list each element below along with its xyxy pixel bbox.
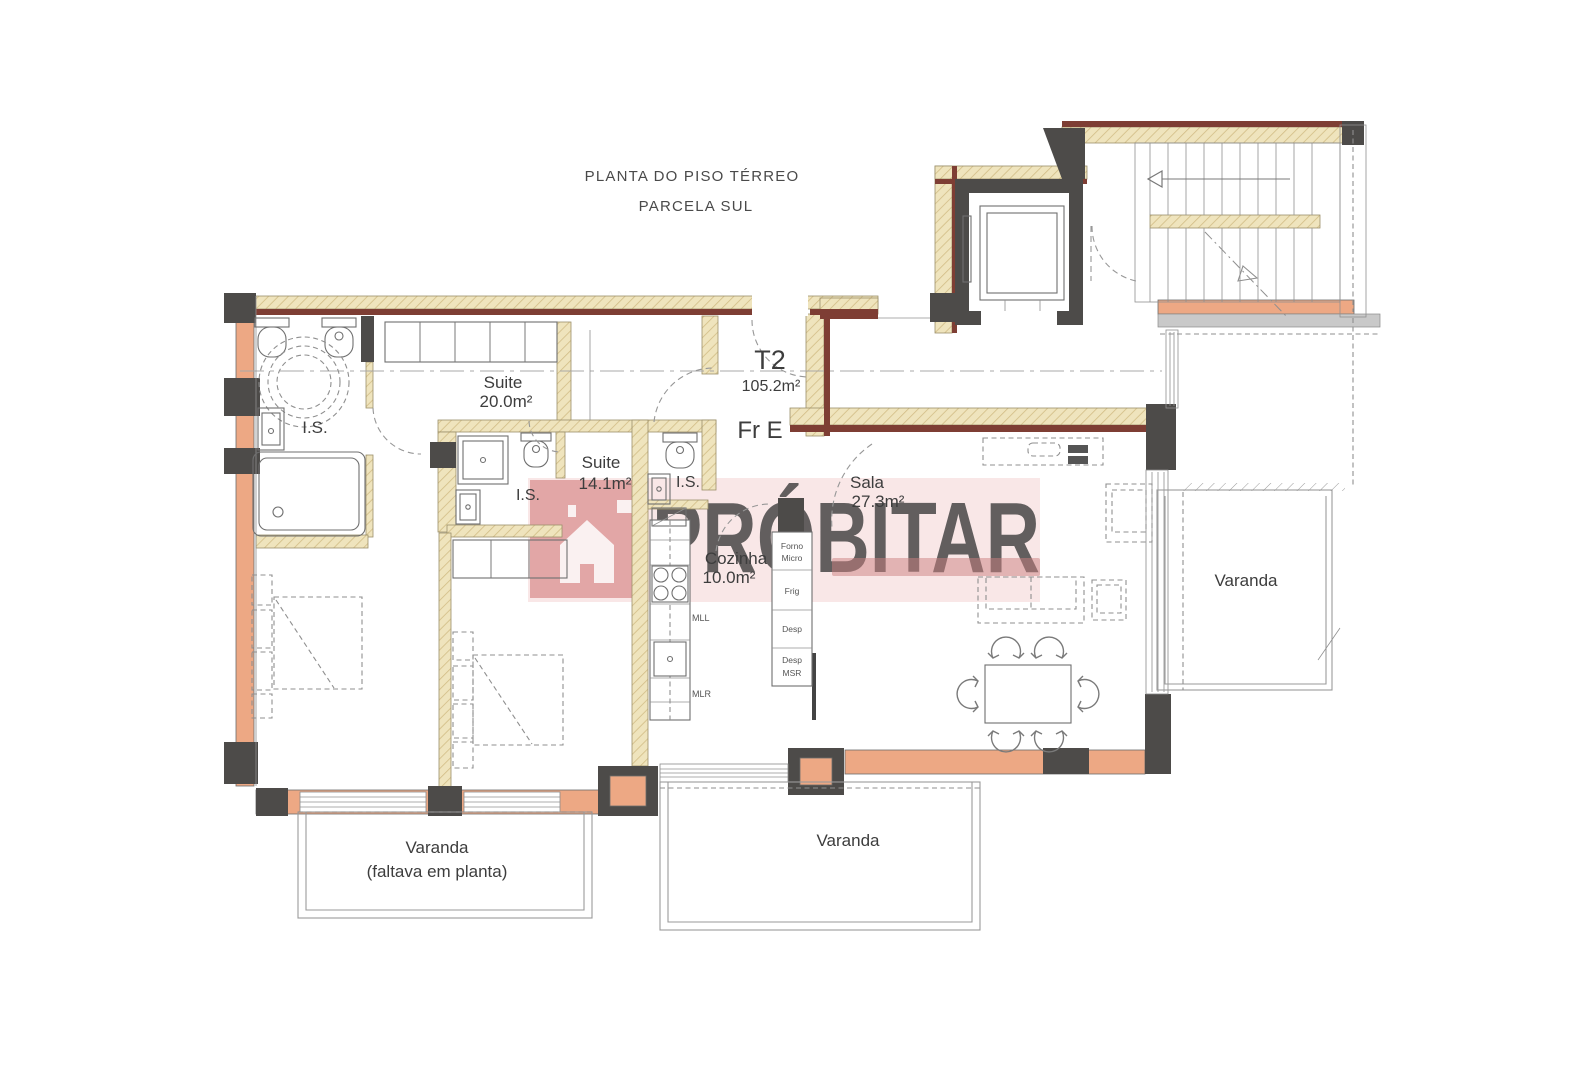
- chair-icon: [1078, 676, 1099, 712]
- bathroom3-label: I.S.: [676, 474, 700, 491]
- balcony-left-label: Varanda: [405, 838, 469, 857]
- bidet-icon: [322, 318, 356, 357]
- unit-area-label: 105.2m²: [742, 378, 801, 395]
- suite1-area: 20.0m²: [480, 392, 533, 411]
- balcony-right: [1157, 490, 1340, 690]
- living-area: 27.3m²: [852, 492, 905, 511]
- plan-subtitle: PARCELA SUL: [639, 198, 754, 215]
- washbasin-icon: [456, 490, 480, 524]
- toilet-icon: [663, 433, 697, 468]
- stair-lobby-door-arc: [1092, 226, 1136, 281]
- hall-door-arc: [654, 368, 712, 422]
- balcony-center-label: Varanda: [816, 831, 880, 850]
- tv-icon: [1068, 445, 1088, 453]
- kitchen-counter: [650, 520, 690, 720]
- chair-icon: [1031, 637, 1067, 658]
- tv-unit: [983, 438, 1103, 465]
- entry-door-label: Fr E: [737, 417, 782, 444]
- dining-set: [957, 637, 1099, 752]
- bathroom1-label: I.S.: [302, 418, 328, 437]
- kitchen-label: Cozinha: [705, 549, 768, 568]
- bed-suite2: [453, 632, 563, 768]
- balcony-center: [660, 782, 980, 930]
- chair-icon: [957, 676, 978, 712]
- pantry2-label2: MSR: [783, 668, 802, 678]
- suite1-wardrobe: [385, 322, 557, 362]
- pantry-label: Desp: [782, 624, 802, 634]
- window-suite2-balcony: [464, 792, 560, 812]
- kitchen-area: 10.0m²: [703, 568, 756, 587]
- balcony-left-note: (faltava em planta): [367, 862, 508, 881]
- toilet-icon: [255, 318, 289, 357]
- toilet-icon: [521, 433, 551, 467]
- floor-plan-drawing: PRÓBITAR: [0, 0, 1588, 1080]
- shower-tray-icon: [458, 436, 508, 484]
- armchair-1: [1092, 580, 1126, 620]
- washbasin-icon: [258, 408, 284, 450]
- plan-title: PLANTA DO PISO TÉRREO: [585, 168, 800, 185]
- fridge-label: Frig: [785, 586, 800, 596]
- dishwasher-label: MLL: [692, 613, 710, 623]
- bathroom2-label: I.S.: [516, 487, 540, 504]
- chair-icon: [988, 731, 1024, 752]
- bathroom1-door-arc: [373, 408, 421, 454]
- suite1-label: Suite: [484, 373, 523, 392]
- living-label: Sala: [850, 473, 885, 492]
- window-kitchen-balcony: [660, 764, 788, 782]
- unit-type-label: T2: [754, 345, 786, 375]
- sink-icon: [654, 642, 686, 676]
- armchair-2: [1106, 484, 1152, 542]
- entrance-opening: [752, 294, 808, 316]
- pantry2-label: Desp: [782, 655, 802, 665]
- suite2-label: Suite: [582, 453, 621, 472]
- dining-table: [985, 665, 1071, 723]
- elevator: [963, 206, 1064, 311]
- hob-icon: [652, 566, 688, 602]
- floor-plan-page: PRÓBITAR: [0, 0, 1588, 1080]
- microwave-label: Micro: [782, 553, 803, 563]
- suite2-area: 14.1m²: [579, 474, 632, 493]
- window-suite1-balcony: [300, 792, 426, 812]
- oven-label: Forno: [781, 541, 803, 551]
- bathtub-icon: [253, 452, 365, 536]
- washer-label: MLR: [692, 689, 712, 699]
- chair-icon: [988, 637, 1024, 658]
- watermark-tagline-strip: [832, 558, 1040, 576]
- bed-suite1: [252, 575, 362, 718]
- elevator-car: [980, 206, 1064, 300]
- stair-up-arrow: [1148, 171, 1290, 187]
- balcony-right-label: Varanda: [1214, 571, 1278, 590]
